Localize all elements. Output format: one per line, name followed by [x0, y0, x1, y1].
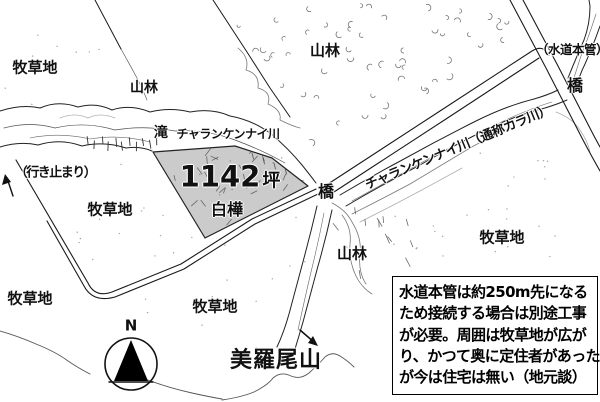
water-main-label: （水道本管） — [536, 44, 600, 57]
pasture-label: 牧草地 — [192, 300, 237, 315]
mountain-contours — [0, 278, 413, 400]
pasture-label: 牧草地 — [87, 203, 132, 218]
pasture-label: 牧草地 — [479, 231, 524, 246]
compass-needle — [114, 340, 148, 381]
waterfall-label: 滝 — [154, 126, 168, 140]
compass-rose — [105, 338, 157, 390]
hand-drawn-land-map: 牧草地 牧草地 牧草地 牧草地 牧草地 山林 山林 山林 滝 チャランケンナイ川… — [0, 0, 600, 402]
mountain-pointer-arrow — [300, 330, 318, 346]
road-lines — [16, 0, 600, 299]
note-line: が必要。周囲は牧草地が広が — [399, 325, 591, 346]
parcel-area-value: 1142 — [180, 163, 261, 192]
note-line: り、かつて奥に定住者があった — [399, 346, 591, 367]
birch-label: 白樺 — [211, 202, 243, 218]
note-line: が今は住宅は無い（地元談） — [399, 367, 591, 388]
forest-label: 山林 — [337, 247, 367, 262]
mountain-name-label: 美羅尾山 — [230, 350, 322, 372]
note-line: ため接続する場合は別途工事 — [399, 303, 591, 324]
river-name-label: チャランケンナイ川 — [176, 128, 279, 140]
bridge-label: 橋 — [567, 78, 583, 94]
forest-label: 山林 — [130, 81, 158, 95]
pasture-label: 牧草地 — [12, 61, 57, 76]
forest-patch-texture — [333, 208, 413, 279]
note-line: 水道本管は約250m先になる — [399, 282, 591, 303]
compass-north-label: N — [125, 319, 138, 334]
boundary-lines — [95, 0, 290, 117]
bridge-label: 橋 — [318, 184, 334, 200]
parcel-area-label: 1142 坪 — [180, 163, 281, 192]
note-box: 水道本管は約250m先になる ため接続する場合は別途工事 が必要。周囲は牧草地が… — [392, 276, 598, 395]
parcel-area-unit: 坪 — [262, 173, 280, 191]
pasture-label: 牧草地 — [7, 292, 52, 307]
forest-label: 山林 — [310, 44, 340, 59]
dead-end-label: （行き止まり） — [15, 167, 96, 180]
dead-end-arrow — [2, 174, 13, 196]
